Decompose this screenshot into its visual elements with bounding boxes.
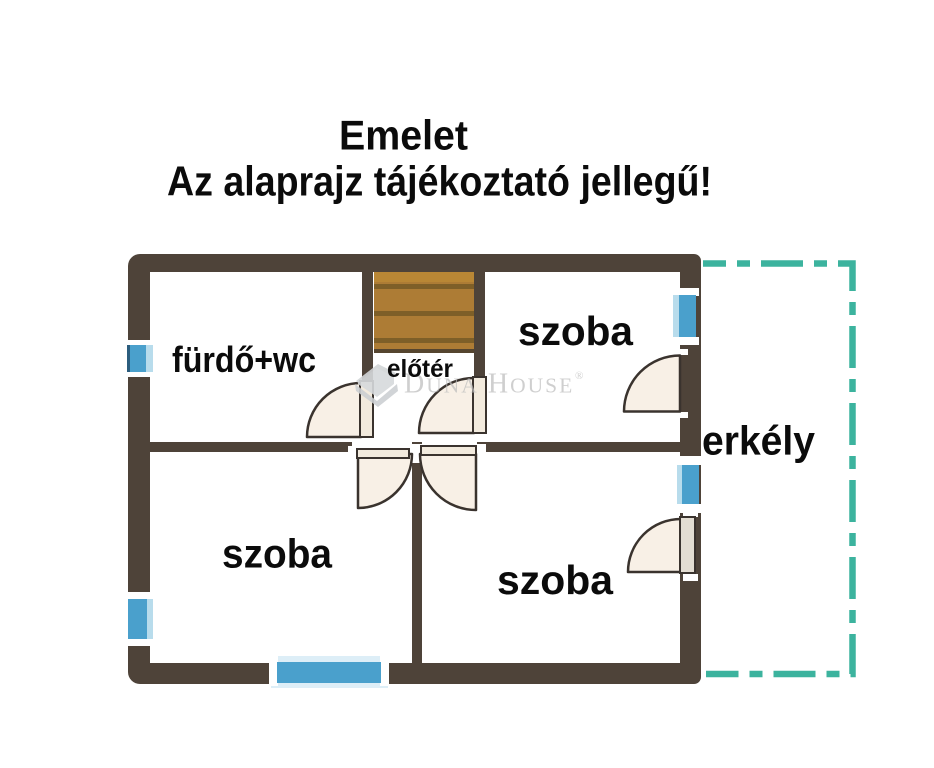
svg-text:®: ® bbox=[575, 370, 583, 382]
svg-text:erkély: erkély bbox=[702, 418, 815, 464]
svg-text:Az alaprajz tájékoztató jelleg: Az alaprajz tájékoztató jellegű! bbox=[167, 158, 712, 205]
svg-text:előtér: előtér bbox=[387, 355, 453, 383]
svg-text:Emelet: Emelet bbox=[339, 112, 468, 159]
svg-text:fürdő+wc: fürdő+wc bbox=[172, 339, 316, 380]
svg-text:szoba: szoba bbox=[518, 308, 634, 354]
svg-text:szoba: szoba bbox=[222, 531, 333, 577]
svg-text:szoba: szoba bbox=[497, 557, 614, 603]
